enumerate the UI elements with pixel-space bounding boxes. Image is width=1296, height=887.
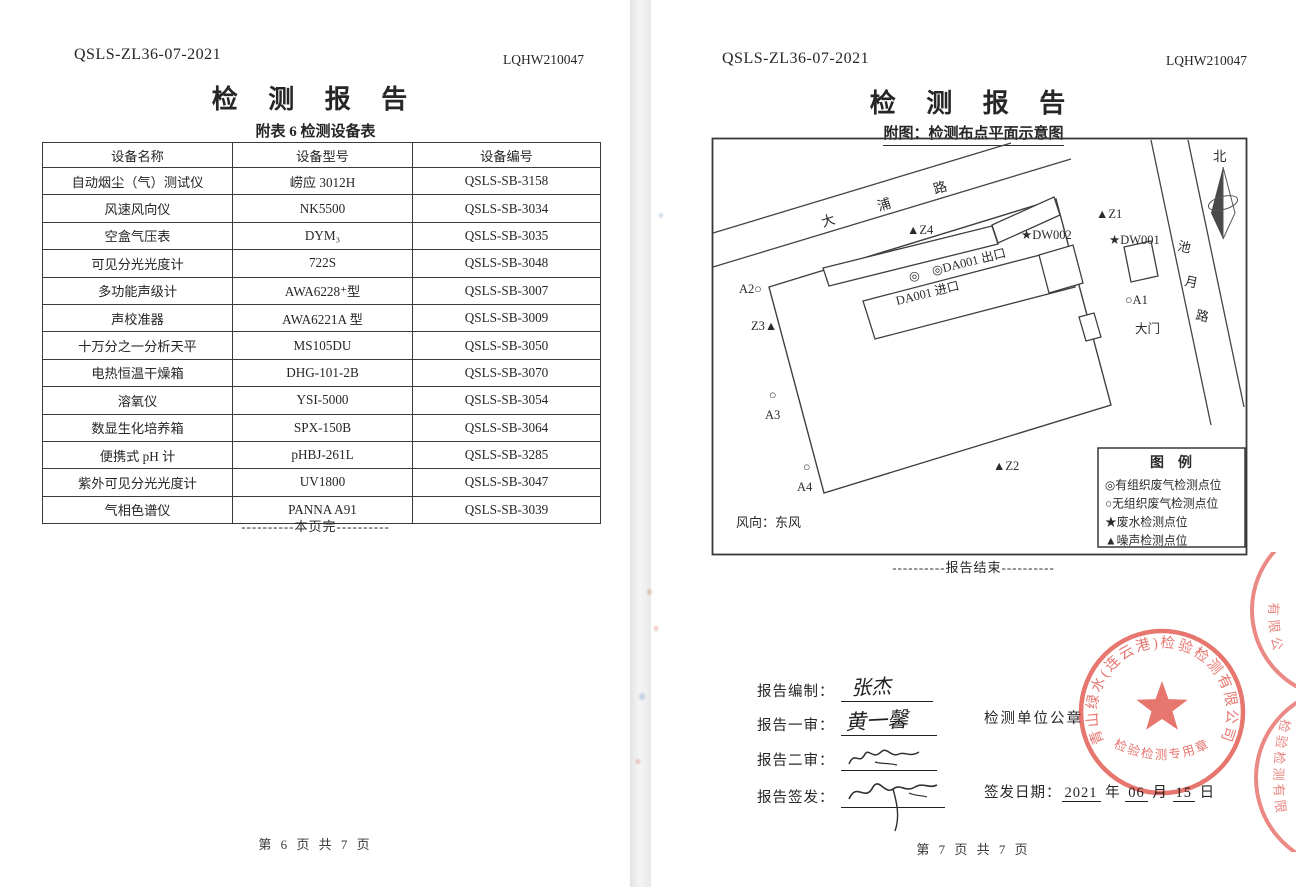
signature-label: 报告签发： bbox=[757, 788, 835, 808]
device-no-cell: QSLS-SB-3035 bbox=[413, 222, 601, 249]
device-model-cell: 崂应 3012H bbox=[233, 168, 413, 195]
table-row: 溶氧仪YSI-5000QSLS-SB-3054 bbox=[43, 387, 601, 414]
end-of-report-line: ----------报告结束---------- bbox=[651, 557, 1296, 576]
device-name-cell: 多功能声级计 bbox=[43, 277, 233, 304]
legend-item: ▲噪声检测点位 bbox=[1105, 534, 1188, 548]
diagram-labels: 北大浦路池月路▲Z4▲Z1★DW002★DW001◎◎DA001 出口DA001… bbox=[739, 149, 1227, 494]
seal-caption: 检测单位公章 bbox=[984, 707, 1083, 728]
signature-label: 报告二审： bbox=[757, 751, 835, 771]
signature-line: 张杰 bbox=[841, 671, 933, 702]
table-row: 声校准器AWA6221A 型QSLS-SB-3009 bbox=[43, 304, 601, 331]
doc-code-left: QSLS-ZL36-07-2021 bbox=[74, 46, 221, 64]
signature-line bbox=[841, 777, 945, 808]
legend-item: ◎有组织废气检测点位 bbox=[1105, 478, 1222, 492]
north-compass-icon bbox=[1207, 167, 1239, 239]
site-diagram-svg: 北大浦路池月路▲Z4▲Z1★DW002★DW001◎◎DA001 出口DA001… bbox=[711, 137, 1249, 556]
diagram-label: 浦 bbox=[875, 196, 892, 214]
equipment-table-body: 设备名称 设备型号 设备编号 自动烟尘（气）测试仪崂应 3012HQSLS-SB… bbox=[43, 143, 601, 524]
legend-item: ○无组织废气检测点位 bbox=[1105, 497, 1219, 511]
scan-speck bbox=[647, 589, 652, 595]
device-name-cell: 空盒气压表 bbox=[43, 222, 233, 249]
end-of-page-line: ----------本页完---------- bbox=[0, 516, 631, 535]
device-no-cell: QSLS-SB-3158 bbox=[413, 168, 601, 195]
diagram-label: 路 bbox=[1194, 307, 1210, 324]
device-no-cell: QSLS-SB-3064 bbox=[413, 414, 601, 441]
device-name-cell: 风速风向仪 bbox=[43, 195, 233, 222]
device-name-cell: 十万分之一分析天平 bbox=[43, 332, 233, 359]
scan-speck bbox=[654, 626, 658, 631]
table-row: 空盒气压表DYM₃QSLS-SB-3035 bbox=[43, 222, 601, 249]
scan-speck bbox=[636, 759, 640, 764]
device-model-cell: AWA6221A 型 bbox=[233, 304, 413, 331]
diagram-label: ★DW001 bbox=[1109, 233, 1160, 247]
device-name-cell: 紫外可见分光光度计 bbox=[43, 469, 233, 496]
diagram-label: 路 bbox=[931, 178, 949, 196]
table-row: 电热恒温干燥箱DHG-101-2BQSLS-SB-3070 bbox=[43, 359, 601, 386]
signature-row-second-review: 报告二审： bbox=[757, 741, 937, 771]
report-no-right: LQHW210047 bbox=[1166, 53, 1247, 69]
device-model-cell: AWA6228⁺型 bbox=[233, 277, 413, 304]
device-name-cell: 电热恒温干燥箱 bbox=[43, 359, 233, 386]
table-row: 多功能声级计AWA6228⁺型QSLS-SB-3007 bbox=[43, 277, 601, 304]
device-model-cell: YSI-5000 bbox=[233, 387, 413, 414]
handwritten-signature: 张杰 bbox=[850, 670, 891, 701]
diagram-label: 北 bbox=[1213, 149, 1227, 164]
issue-date-label: 签发日期： bbox=[984, 785, 1062, 801]
device-no-cell: QSLS-SB-3009 bbox=[413, 304, 601, 331]
device-model-cell: NK5500 bbox=[233, 195, 413, 222]
device-no-cell: QSLS-SB-3007 bbox=[413, 277, 601, 304]
col-header-device-no: 设备编号 bbox=[413, 143, 601, 168]
diagram-label: ○ bbox=[769, 388, 777, 402]
report-no-left: LQHW210047 bbox=[503, 52, 584, 68]
device-model-cell: pHBJ-261L bbox=[233, 441, 413, 468]
table-row: 可见分光光度计722SQSLS-SB-3048 bbox=[43, 250, 601, 277]
diagram-label: 月 bbox=[1183, 273, 1199, 290]
col-header-device-model: 设备型号 bbox=[233, 143, 413, 168]
signature-label: 报告一审： bbox=[757, 716, 835, 736]
device-no-cell: QSLS-SB-3034 bbox=[413, 195, 601, 222]
page-gap-divider bbox=[630, 0, 651, 887]
device-name-cell: 可见分光光度计 bbox=[43, 250, 233, 277]
partial-stamp-text-upper: 有限公 bbox=[1266, 602, 1287, 656]
device-name-cell: 数显生化培养箱 bbox=[43, 414, 233, 441]
signature-row-first-review: 报告一审： 黄一馨 bbox=[757, 706, 937, 736]
diagram-label: 池 bbox=[1176, 238, 1192, 255]
wind-direction-note: 风向：东风 bbox=[736, 515, 801, 530]
device-model-cell: SPX-150B bbox=[233, 414, 413, 441]
legend-title: 图 例 bbox=[1150, 454, 1192, 471]
diagram-label: 大门 bbox=[1135, 321, 1160, 336]
table-row: 自动烟尘（气）测试仪崂应 3012HQSLS-SB-3158 bbox=[43, 168, 601, 195]
diagram-label: A4 bbox=[797, 480, 813, 494]
partial-stamps-right-edge: 有限公 检验检测有限 bbox=[1238, 552, 1296, 852]
device-no-cell: QSLS-SB-3285 bbox=[413, 441, 601, 468]
dapu-road-lines bbox=[713, 143, 1071, 267]
site-plan-diagram: 北大浦路池月路▲Z4▲Z1★DW002★DW001◎◎DA001 出口DA001… bbox=[711, 137, 1249, 556]
stamp-star-icon bbox=[1136, 681, 1187, 730]
company-seal-stamp: 青山绿水(连云港)检验检测有限公司 检验检测专用章 bbox=[1072, 622, 1252, 802]
table-row: 十万分之一分析天平MS105DUQSLS-SB-3050 bbox=[43, 332, 601, 359]
page-title-right: 检 测 报 告 bbox=[651, 83, 1296, 120]
stamp-type-text: 检验检测专用章 bbox=[1112, 736, 1212, 762]
device-no-cell: QSLS-SB-3050 bbox=[413, 332, 601, 359]
signature-scribble bbox=[845, 773, 945, 835]
signature-line bbox=[841, 740, 937, 771]
device-no-cell: QSLS-SB-3047 bbox=[413, 469, 601, 496]
table-row: 紫外可见分光光度计UV1800QSLS-SB-3047 bbox=[43, 469, 601, 496]
device-name-cell: 便携式 pH 计 bbox=[43, 441, 233, 468]
device-name-cell: 溶氧仪 bbox=[43, 387, 233, 414]
gate-rect bbox=[1079, 313, 1101, 341]
signature-row-prepared: 报告编制： 张杰 bbox=[757, 672, 933, 702]
device-no-cell: QSLS-SB-3054 bbox=[413, 387, 601, 414]
legend-item: ★废水检测点位 bbox=[1105, 515, 1188, 529]
diagram-label: ○A1 bbox=[1125, 293, 1148, 307]
device-model-cell: 722S bbox=[233, 250, 413, 277]
table-row: 便携式 pH 计pHBJ-261LQSLS-SB-3285 bbox=[43, 441, 601, 468]
device-model-cell: MS105DU bbox=[233, 332, 413, 359]
table-row: 风速风向仪NK5500QSLS-SB-3034 bbox=[43, 195, 601, 222]
table-row: 数显生化培养箱SPX-150BQSLS-SB-3064 bbox=[43, 414, 601, 441]
diagram-label: ○ bbox=[803, 460, 811, 474]
diagram-label: A3 bbox=[765, 408, 780, 422]
page-footer-left: 第 6 页 共 7 页 bbox=[0, 834, 631, 853]
signature-scribble bbox=[845, 742, 929, 772]
device-name-cell: 声校准器 bbox=[43, 304, 233, 331]
diagram-label: ▲Z2 bbox=[993, 459, 1019, 473]
diagram-label: 大 bbox=[819, 212, 836, 230]
page-subtitle-left: 附表 6 检测设备表 bbox=[0, 120, 631, 141]
equipment-table: 设备名称 设备型号 设备编号 自动烟尘（气）测试仪崂应 3012HQSLS-SB… bbox=[42, 142, 601, 524]
scanned-report-two-pages: QSLS-ZL36-07-2021 LQHW210047 检 测 报 告 附表 … bbox=[0, 0, 1296, 887]
page-footer-right: 第 7 页 共 7 页 bbox=[651, 839, 1296, 858]
table-header-row: 设备名称 设备型号 设备编号 bbox=[43, 143, 601, 168]
left-page: QSLS-ZL36-07-2021 LQHW210047 检 测 报 告 附表 … bbox=[0, 0, 631, 887]
diagram-label: ◎ bbox=[909, 269, 920, 283]
handwritten-signature: 黄一馨 bbox=[844, 703, 908, 736]
diagram-label: Z3▲ bbox=[751, 319, 777, 333]
legend-box: 图 例 ◎有组织废气检测点位○无组织废气检测点位★废水检测点位▲噪声检测点位 bbox=[1098, 448, 1245, 548]
diagram-label: A2○ bbox=[739, 282, 762, 296]
device-model-cell: UV1800 bbox=[233, 469, 413, 496]
page-title-left: 检 测 报 告 bbox=[0, 79, 631, 116]
scan-speck bbox=[639, 693, 645, 700]
device-model-cell: DHG-101-2B bbox=[233, 359, 413, 386]
col-header-device-name: 设备名称 bbox=[43, 143, 233, 168]
partial-stamp-text-lower: 检验检测有限 bbox=[1271, 718, 1293, 817]
signature-label: 报告编制： bbox=[757, 682, 835, 702]
doc-code-right: QSLS-ZL36-07-2021 bbox=[722, 50, 869, 68]
scan-speck bbox=[659, 213, 663, 218]
signature-row-issued: 报告签发： bbox=[757, 778, 945, 808]
diagram-label: ▲Z1 bbox=[1096, 207, 1122, 221]
signature-line: 黄一馨 bbox=[841, 705, 937, 736]
device-no-cell: QSLS-SB-3070 bbox=[413, 359, 601, 386]
building-dw001 bbox=[1124, 241, 1158, 282]
device-model-cell: DYM₃ bbox=[233, 222, 413, 249]
diagram-label: ★DW002 bbox=[1021, 228, 1072, 242]
diagram-label: ▲Z4 bbox=[907, 223, 934, 237]
device-name-cell: 自动烟尘（气）测试仪 bbox=[43, 168, 233, 195]
device-no-cell: QSLS-SB-3048 bbox=[413, 250, 601, 277]
